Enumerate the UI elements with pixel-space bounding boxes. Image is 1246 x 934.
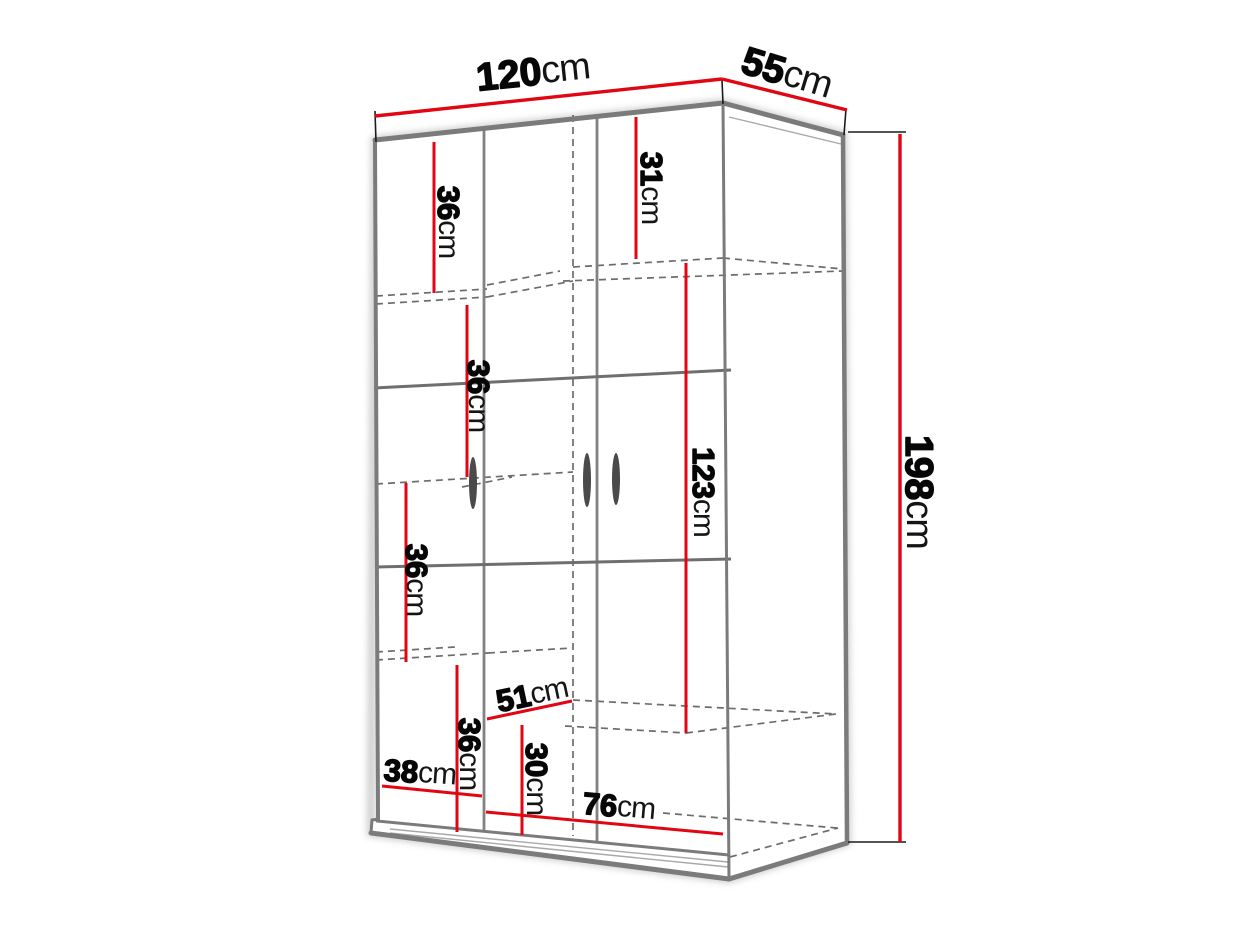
door-handle-middle [583, 453, 591, 507]
dimension-label-hanging-123: 123cm [687, 447, 722, 537]
right-side-panel [723, 103, 847, 879]
dimension-label-upper-left-36: 36cm [462, 360, 497, 432]
door-handle-left [469, 457, 477, 509]
dimension-label-right-width-76: 76cm [581, 785, 656, 826]
door-handle-right [612, 453, 620, 505]
dimension-label-top-left-36: 36cm [432, 186, 467, 258]
dimension-label-lower-left-36: 36cm [453, 718, 488, 790]
dimension-label-middle-left-36: 36cm [400, 544, 435, 616]
dimension-label-top-right-31: 31cm [635, 152, 670, 224]
dimension-label-bottom-30: 30cm [520, 743, 555, 815]
dimension-label-height: 198cm [898, 435, 941, 549]
diagram-canvas: 120cm 55cm 198cm 36cm 31cm 36cm 123cm 36… [0, 0, 1246, 934]
dimension-label-left-width-38: 38cm [383, 752, 458, 792]
dimension-label-width: 120cm [474, 45, 592, 100]
wardrobe-dimension-diagram: 120cm 55cm 198cm 36cm 31cm 36cm 123cm 36… [0, 0, 1246, 934]
